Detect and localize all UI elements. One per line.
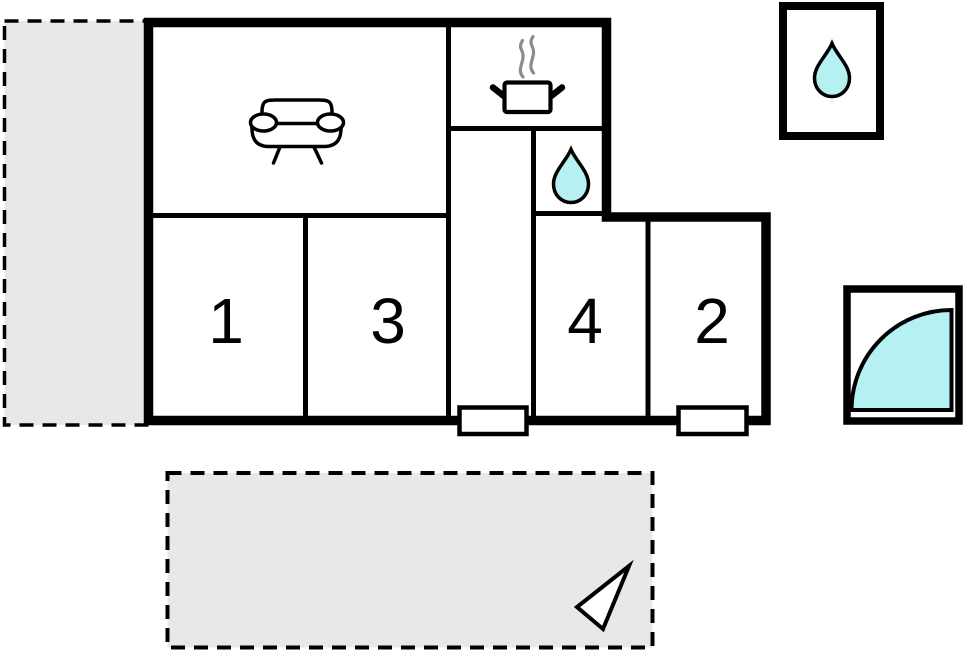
outbuilding-utility (783, 6, 880, 136)
door-hallway (460, 408, 527, 435)
room-2-label: 2 (694, 285, 730, 357)
terrace-left-area (5, 21, 151, 425)
room-4-label: 4 (567, 285, 603, 357)
floor-plan-drawing: 1 3 4 2 (0, 0, 970, 652)
room-1-label: 1 (208, 285, 244, 357)
floor-plan-canvas: 1 3 4 2 (0, 0, 970, 652)
door-room2 (679, 408, 747, 435)
outbuilding-shower (847, 289, 959, 421)
terrace-bottom-area (168, 473, 653, 648)
room-3-label: 3 (370, 285, 406, 357)
building-outer-wall (149, 23, 767, 421)
